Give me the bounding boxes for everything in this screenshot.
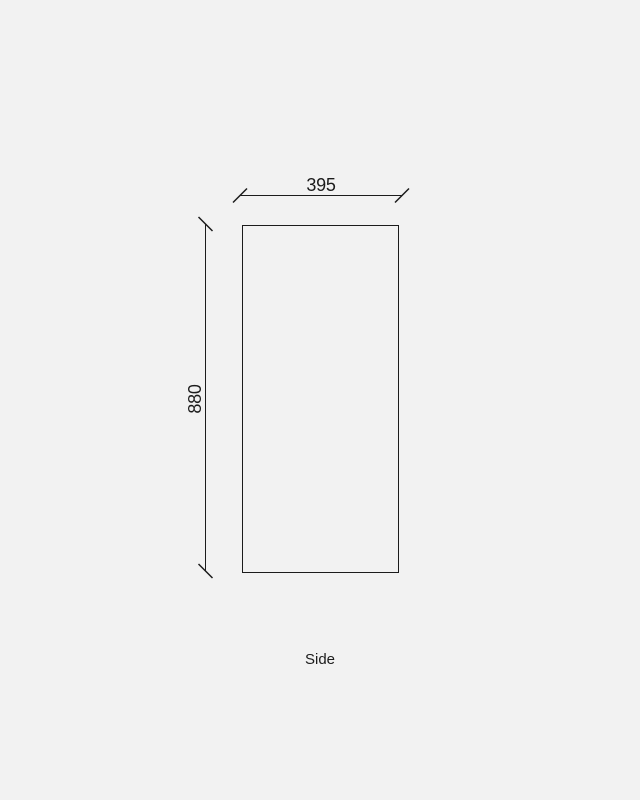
drawing-canvas: 395 880 Side [0, 0, 640, 800]
height-dimension: 880 [185, 217, 213, 578]
panel-outline [243, 226, 399, 573]
width-dimension: 395 [233, 175, 409, 203]
width-dimension-label: 395 [306, 175, 335, 195]
technical-drawing: 395 880 Side [0, 0, 640, 800]
height-dimension-label: 880 [185, 384, 205, 413]
view-label: Side [305, 651, 335, 668]
